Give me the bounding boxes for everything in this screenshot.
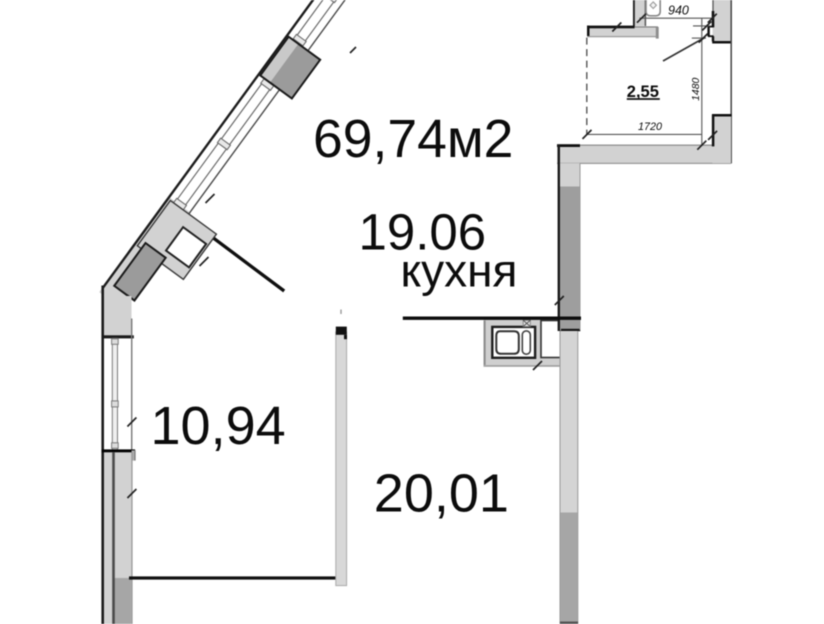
svg-text:10,94: 10,94 [151,396,286,456]
svg-text:1480: 1480 [691,78,702,101]
svg-text:кухня: кухня [401,245,518,297]
svg-text:1720: 1720 [638,121,662,133]
svg-text:940: 940 [668,4,689,18]
svg-text:20,01: 20,01 [374,464,509,524]
svg-text:69,74м2: 69,74м2 [313,110,513,169]
